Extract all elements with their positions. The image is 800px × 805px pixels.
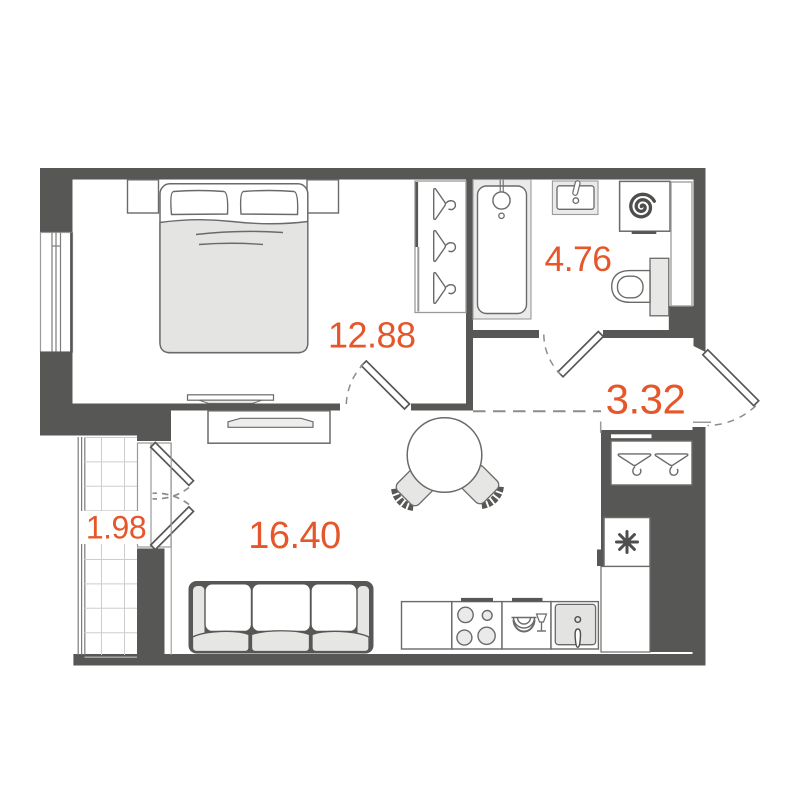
svg-text:1.98: 1.98 — [86, 510, 146, 546]
svg-text:16.40: 16.40 — [248, 515, 341, 557]
svg-text:12.88: 12.88 — [328, 315, 416, 356]
svg-text:4.76: 4.76 — [544, 239, 611, 279]
svg-text:3.32: 3.32 — [606, 376, 686, 423]
